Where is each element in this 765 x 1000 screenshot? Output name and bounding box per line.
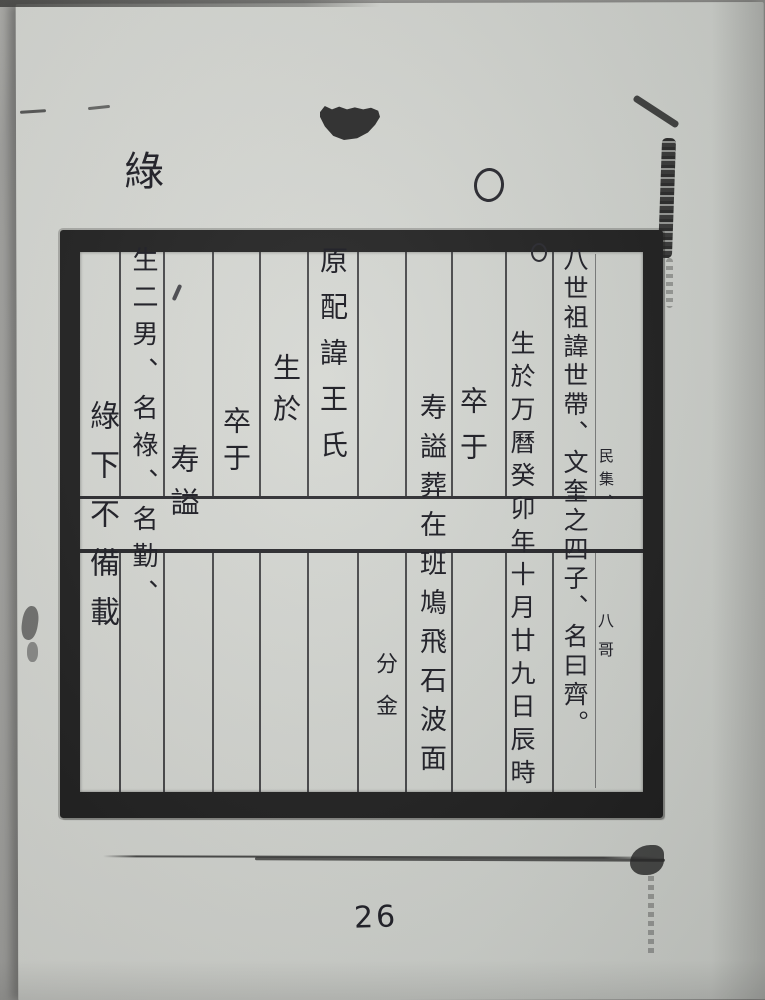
page-edge-streak-tail <box>666 258 673 308</box>
column-text-death: 卒于 <box>458 386 486 478</box>
column-text-spouse-posthumous: 寿謚 <box>168 444 197 530</box>
inner-column-line <box>595 553 596 788</box>
ink-smudge <box>27 642 38 662</box>
grid-cell <box>261 553 309 792</box>
photo-top-edge-shadow <box>0 0 380 7</box>
page-number: 26 <box>353 899 398 936</box>
column-text-sons: 生二男、名祿、名勤、 <box>130 246 156 616</box>
grid-circle-mark <box>531 243 547 262</box>
column-text-burial: 寿謚葬在班鳩飛石波面 <box>417 393 444 783</box>
grid-cell <box>359 252 407 496</box>
column-text-spouse-birth: 生於 <box>271 353 299 435</box>
column-text-generation: 八世祖諱世帶、文奎之四子、名曰齊。 <box>562 246 587 739</box>
inner-column-line <box>595 254 596 496</box>
grid-cell <box>309 553 359 792</box>
grid-cell <box>453 553 507 792</box>
grid-row-bottom <box>80 549 643 792</box>
grid-middle-band <box>80 499 643 549</box>
toner-streak <box>648 876 654 956</box>
scanned-genealogy-page: 綠 八世祖諱世帶、文奎之四子、名曰齊。 民集、 八哥 生於万曆癸卯年十月廿九日辰… <box>0 0 765 1000</box>
annotation-lower: 八哥 <box>596 612 612 670</box>
column-text-spouse-death: 卒于 <box>221 406 249 480</box>
grid-cell <box>214 553 261 792</box>
annotation-upper: 民集、 <box>598 448 613 517</box>
column-text-birth: 生於万曆癸卯年十月廿九日辰時 <box>509 330 534 792</box>
grid-cell <box>165 553 214 792</box>
column-text-continuation: 綠下不備載 <box>86 400 116 645</box>
grid-row-top <box>80 252 643 499</box>
column-text-spouse: 原配諱王氏 <box>318 246 346 476</box>
column-text-bearing: 分金 <box>373 652 395 736</box>
toner-blotch <box>630 845 664 875</box>
top-left-character: 綠 <box>120 150 160 190</box>
